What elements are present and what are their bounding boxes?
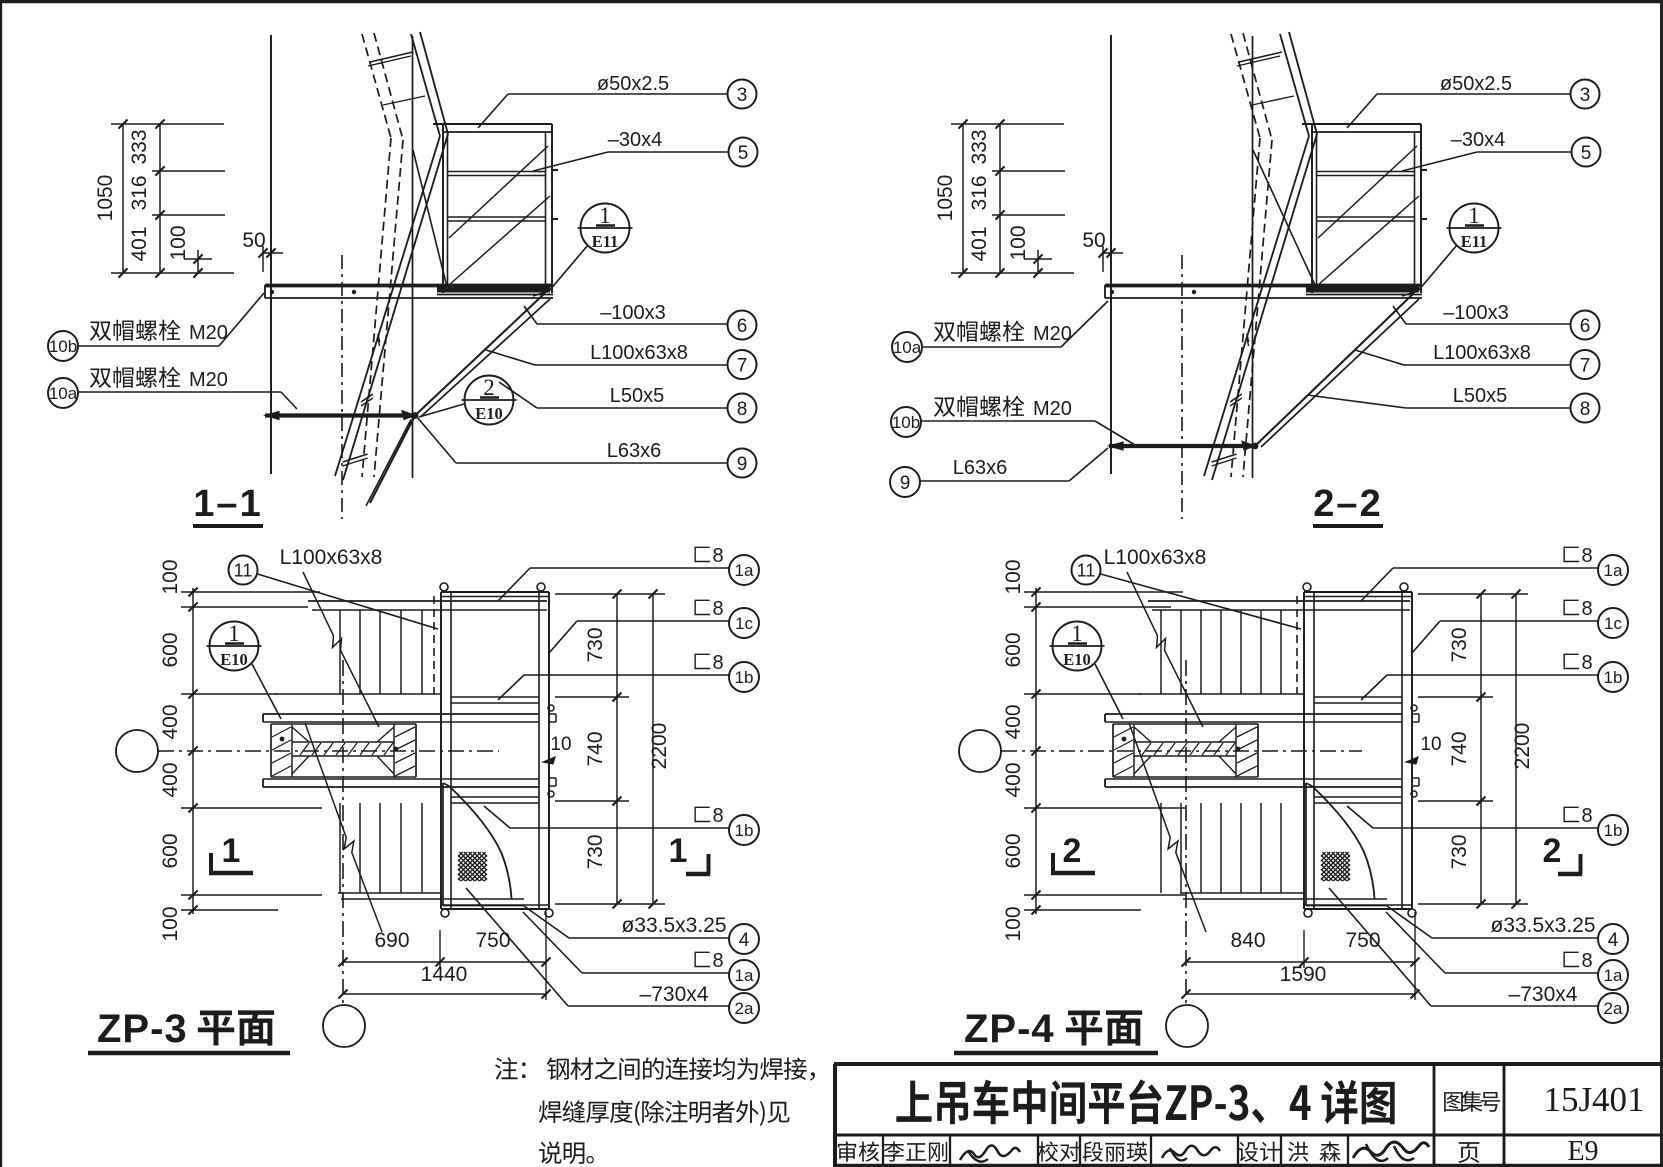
svg-text:2a: 2a: [1604, 999, 1623, 1018]
svg-text:600: 600: [159, 833, 182, 868]
svg-text:8: 8: [1581, 545, 1592, 567]
svg-text:9: 9: [737, 454, 748, 475]
svg-text:1c: 1c: [1604, 614, 1622, 633]
svg-text:7: 7: [1580, 355, 1591, 376]
svg-text:E10: E10: [475, 404, 503, 423]
svg-text:100: 100: [1002, 559, 1025, 594]
svg-text:1590: 1590: [1280, 963, 1327, 986]
svg-text:8: 8: [1581, 652, 1592, 674]
svg-text:840: 840: [1230, 929, 1265, 952]
svg-text:730: 730: [1448, 834, 1471, 869]
svg-text:1b: 1b: [1604, 668, 1623, 687]
svg-text:2200: 2200: [1511, 723, 1534, 770]
svg-text:7: 7: [737, 355, 748, 376]
svg-text:400: 400: [1002, 762, 1025, 797]
svg-text:740: 740: [1448, 731, 1471, 766]
svg-text:L63x6: L63x6: [607, 440, 662, 462]
svg-text:8: 8: [1580, 399, 1591, 420]
svg-text:–730x4: –730x4: [1509, 983, 1578, 1006]
svg-text:ø33.5x3.25: ø33.5x3.25: [621, 914, 726, 937]
svg-text:8: 8: [712, 598, 723, 620]
svg-text:ø50x2.5: ø50x2.5: [597, 73, 669, 95]
svg-text:4: 4: [739, 930, 750, 951]
svg-text:5: 5: [1581, 143, 1592, 164]
svg-text:400: 400: [159, 704, 182, 739]
svg-text:8: 8: [712, 652, 723, 674]
svg-text:2: 2: [1543, 832, 1562, 870]
svg-text:740: 740: [584, 731, 607, 766]
svg-text:–30x4: –30x4: [608, 129, 663, 151]
svg-text:400: 400: [1002, 704, 1025, 739]
svg-text:1a: 1a: [1604, 966, 1623, 985]
svg-text:–30x4: –30x4: [1451, 129, 1506, 151]
svg-text:600: 600: [159, 632, 182, 667]
svg-text:1440: 1440: [421, 963, 468, 986]
svg-text:333: 333: [128, 129, 151, 164]
svg-text:100: 100: [159, 906, 182, 941]
svg-text:L63x6: L63x6: [953, 457, 1008, 479]
svg-text:1a: 1a: [1604, 561, 1623, 580]
svg-text:4: 4: [1608, 930, 1619, 951]
svg-text:316: 316: [968, 175, 991, 210]
svg-text:400: 400: [159, 762, 182, 797]
svg-text:9: 9: [900, 473, 911, 494]
svg-text:8: 8: [737, 399, 748, 420]
svg-text:5: 5: [738, 143, 749, 164]
svg-text:3: 3: [737, 85, 748, 106]
svg-text:600: 600: [1002, 632, 1025, 667]
svg-text:730: 730: [1448, 627, 1471, 662]
svg-text:1b: 1b: [735, 668, 754, 687]
svg-text:L100x63x8: L100x63x8: [1433, 342, 1531, 364]
svg-text:1: 1: [222, 832, 241, 870]
svg-text:1b: 1b: [735, 821, 754, 840]
svg-text:730: 730: [584, 627, 607, 662]
svg-text:8: 8: [1581, 598, 1592, 620]
svg-text:10a: 10a: [49, 384, 78, 403]
svg-text:600: 600: [1002, 833, 1025, 868]
svg-text:1b: 1b: [1604, 821, 1623, 840]
svg-text:8: 8: [712, 545, 723, 567]
svg-text:L50x5: L50x5: [610, 385, 665, 407]
svg-text:690: 690: [374, 929, 409, 952]
svg-text:–730x4: –730x4: [640, 983, 709, 1006]
svg-text:50: 50: [242, 229, 265, 252]
svg-text:50: 50: [1082, 229, 1105, 252]
svg-text:2–2: 2–2: [1313, 483, 1382, 525]
svg-text:2200: 2200: [648, 723, 671, 770]
svg-text:1050: 1050: [94, 175, 117, 222]
svg-text:401: 401: [128, 226, 151, 261]
svg-text:11: 11: [1077, 561, 1096, 581]
svg-text:401: 401: [968, 226, 991, 261]
svg-text:750: 750: [1345, 929, 1380, 952]
svg-text:–100x3: –100x3: [600, 302, 666, 324]
svg-text:L100x63x8: L100x63x8: [590, 342, 688, 364]
svg-text:10b: 10b: [49, 337, 77, 356]
svg-text:1–1: 1–1: [193, 483, 262, 525]
svg-text:–100x3: –100x3: [1443, 302, 1509, 324]
svg-text:6: 6: [737, 316, 748, 337]
svg-text:8: 8: [1581, 805, 1592, 827]
svg-text:E10: E10: [1063, 650, 1091, 669]
svg-text:ø33.5x3.25: ø33.5x3.25: [1490, 914, 1595, 937]
svg-text:M20: M20: [1033, 398, 1072, 420]
svg-text:L100x63x8: L100x63x8: [1104, 546, 1207, 569]
svg-text:ø50x2.5: ø50x2.5: [1440, 73, 1512, 95]
svg-text:L50x5: L50x5: [1453, 385, 1508, 407]
svg-text:ZP-4: ZP-4: [964, 1007, 1055, 1051]
svg-text:750: 750: [475, 929, 510, 952]
svg-text:100: 100: [1007, 225, 1030, 260]
svg-text:M20: M20: [189, 322, 228, 344]
svg-text:1050: 1050: [934, 175, 957, 222]
svg-text:100: 100: [1002, 906, 1025, 941]
svg-text:2a: 2a: [735, 999, 754, 1018]
svg-text:ZP-3: ZP-3: [97, 1007, 188, 1051]
svg-text:3: 3: [1580, 85, 1591, 106]
svg-text:E11: E11: [592, 232, 619, 251]
svg-text:1c: 1c: [735, 614, 753, 633]
svg-text:316: 316: [128, 175, 151, 210]
svg-text:2: 2: [1063, 832, 1082, 870]
svg-text:100: 100: [167, 225, 190, 260]
svg-text:8: 8: [712, 950, 723, 972]
svg-text:6: 6: [1580, 316, 1591, 337]
svg-text:1: 1: [669, 832, 688, 870]
svg-text:730: 730: [584, 834, 607, 869]
svg-text:333: 333: [968, 129, 991, 164]
svg-text:E11: E11: [1461, 232, 1488, 251]
svg-text:L100x63x8: L100x63x8: [280, 546, 383, 569]
svg-text:10a: 10a: [893, 338, 922, 357]
svg-text:15J401: 15J401: [1543, 1080, 1644, 1119]
svg-text:E9: E9: [1567, 1136, 1598, 1167]
svg-text:E10: E10: [220, 650, 248, 669]
svg-text:10: 10: [550, 734, 571, 755]
svg-text:1a: 1a: [735, 561, 754, 580]
svg-text:M20: M20: [189, 369, 228, 391]
svg-text:100: 100: [159, 559, 182, 594]
svg-text:8: 8: [712, 805, 723, 827]
svg-text:8: 8: [1581, 950, 1592, 972]
svg-text:1a: 1a: [735, 966, 754, 985]
svg-text:10b: 10b: [892, 413, 920, 432]
svg-text:11: 11: [234, 561, 253, 581]
svg-text:10: 10: [1420, 734, 1441, 755]
